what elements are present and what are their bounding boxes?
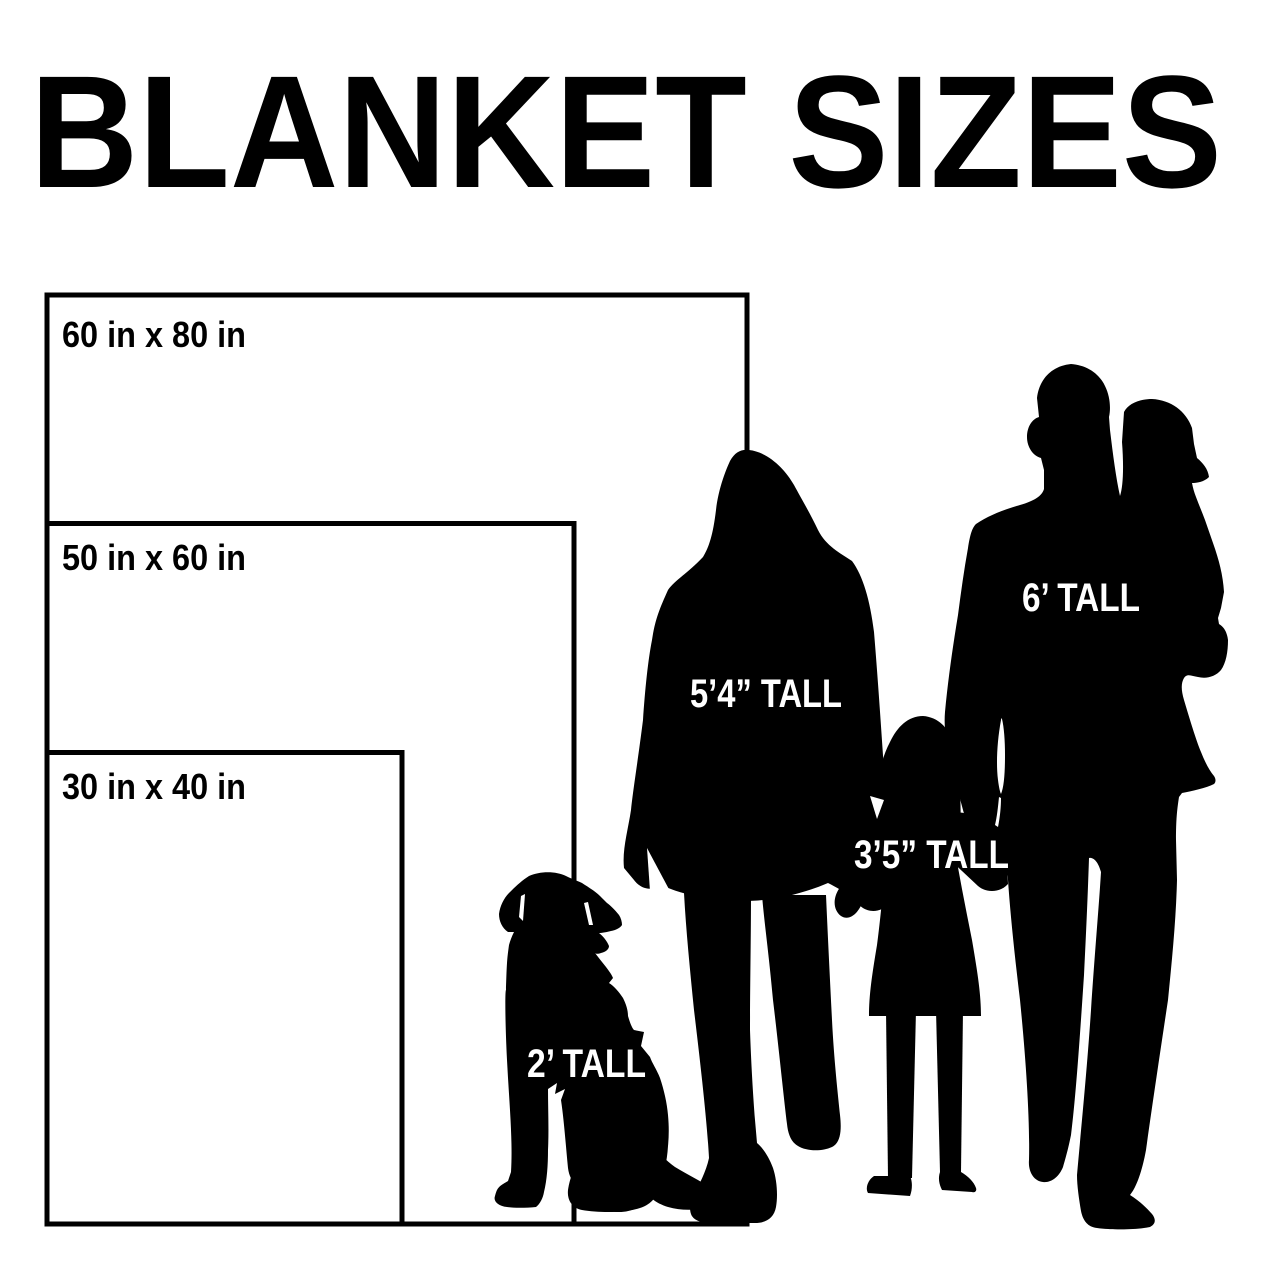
svg-text:2’ TALL: 2’ TALL (527, 1042, 646, 1086)
svg-text:60 in x 80 in: 60 in x 80 in (62, 314, 246, 355)
svg-text:3’5” TALL: 3’5” TALL (854, 833, 1009, 877)
svg-text:6’ TALL: 6’ TALL (1022, 576, 1140, 620)
svg-text:30 in x 40 in: 30 in x 40 in (62, 766, 246, 807)
svg-text:5’4” TALL: 5’4” TALL (690, 672, 842, 716)
svg-text:50 in x 60 in: 50 in x 60 in (62, 537, 246, 578)
svg-text:BLANKET SIZES: BLANKET SIZES (30, 42, 1222, 221)
